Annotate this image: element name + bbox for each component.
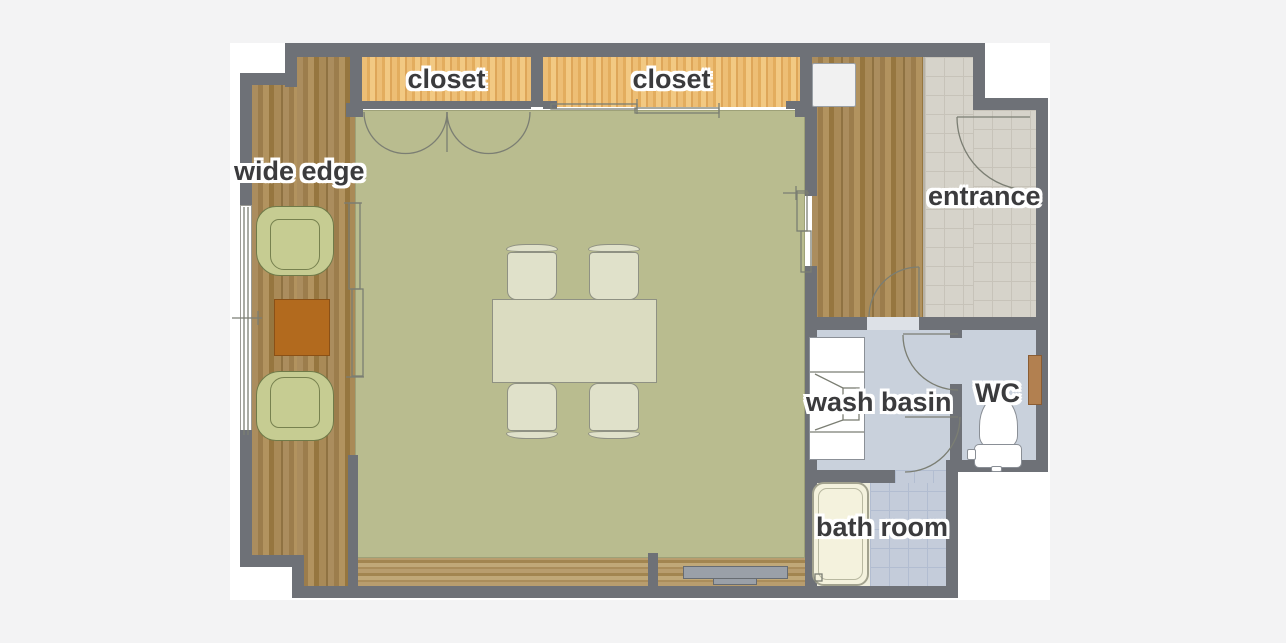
wall-hall-bottom-left — [817, 317, 867, 330]
toilet-button — [991, 466, 1002, 472]
dining-chair — [589, 383, 639, 431]
label-bath-room: bath room — [816, 512, 948, 543]
wall-closet1-front — [362, 101, 531, 109]
label-closet-1: closet — [362, 64, 531, 95]
wall-veranda-divider — [648, 553, 658, 598]
entrance-step-edge — [923, 57, 925, 317]
window-wide-edge — [240, 205, 252, 435]
label-closet-2: closet — [543, 64, 800, 95]
dining-chair — [507, 383, 557, 431]
toilet-tank — [974, 444, 1022, 468]
label-wc: WC — [975, 378, 1020, 409]
window-track-tab — [713, 578, 757, 585]
dining-table — [492, 299, 657, 383]
wall-segment — [240, 430, 252, 567]
wall-closet-divider — [531, 43, 543, 107]
wall-segment — [292, 586, 958, 598]
side-table — [274, 299, 330, 356]
wall-closet1-left — [350, 45, 362, 107]
wall-wideedge-lower — [348, 455, 358, 588]
armchair-top — [256, 206, 334, 276]
toilet-handle — [967, 449, 976, 460]
cabinet — [812, 63, 856, 107]
wall-segment — [346, 103, 363, 117]
label-entrance: entrance — [928, 181, 1041, 212]
wall-segment — [543, 101, 557, 109]
wall-segment — [240, 73, 252, 211]
armchair-bottom — [256, 371, 334, 441]
dining-chair — [589, 252, 639, 300]
label-wide-edge: wide edge — [234, 156, 365, 187]
wall-segment — [293, 43, 985, 57]
label-wash-basin: wash basin — [806, 387, 952, 418]
room-entrance-floor-right — [973, 110, 1036, 330]
dining-chair — [507, 252, 557, 300]
hall-doorway-threshold — [867, 317, 919, 330]
wall-closet2-right — [800, 43, 812, 107]
wall-hall-bottom-right — [919, 317, 1048, 330]
bath-doorway-threshold — [895, 470, 946, 483]
wall-mainroom-hall — [805, 110, 817, 196]
wall-segment — [973, 43, 985, 105]
floor-plan-stage: wide edge closet closet entrance wash ba… — [0, 0, 1286, 643]
wall-wc-stub — [950, 330, 962, 338]
wall-segment — [1036, 98, 1048, 472]
wc-shelf — [1028, 355, 1042, 405]
